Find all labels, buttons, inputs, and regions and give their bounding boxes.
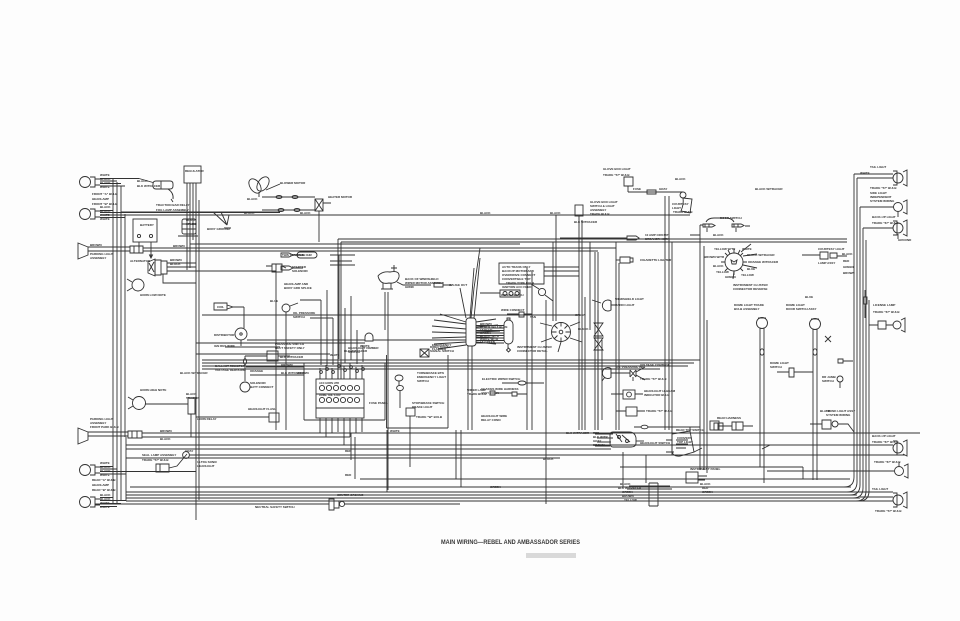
svg-text:TAN: TAN	[530, 315, 536, 319]
svg-text:LICENSE LAMP: LICENSE LAMP	[873, 303, 895, 307]
svg-text:YELLOW: YELLOW	[624, 498, 637, 502]
svg-text:INSTRUMENT PANEL: INSTRUMENT PANEL	[690, 467, 721, 471]
svg-text:YELLOW: YELLOW	[716, 270, 729, 274]
svg-text:HORN HIGH NOTE: HORN HIGH NOTE	[140, 388, 166, 392]
svg-text:COURTESY LIGHT: COURTESY LIGHT	[818, 247, 845, 251]
svg-text:BODY GRD SPLICE: BODY GRD SPLICE	[284, 286, 312, 290]
svg-text:REGULATOR: REGULATOR	[185, 169, 205, 173]
svg-text:WHITE: WHITE	[360, 344, 370, 348]
svg-text:BULB ASSEMBLY: BULB ASSEMBLY	[734, 307, 759, 311]
svg-text:GREEN: GREEN	[843, 265, 854, 269]
svg-text:WINDSHIELD LIGHT: WINDSHIELD LIGHT	[615, 297, 644, 301]
svg-text:GREEN: GREEN	[725, 275, 736, 279]
svg-text:REAR TOP SWITCH: REAR TOP SWITCH	[676, 428, 704, 432]
svg-text:IGNITION ACC FEED: IGNITION ACC FEED	[502, 285, 532, 289]
svg-text:BLACK: BLACK	[713, 233, 724, 237]
svg-text:HORN LOW NOTE: HORN LOW NOTE	[140, 293, 166, 297]
svg-text:RED: RED	[345, 449, 352, 453]
svg-text:YELLOW: YELLOW	[741, 273, 754, 277]
svg-text:BLACK: BLACK	[675, 177, 686, 181]
svg-text:RED: RED	[843, 259, 850, 263]
svg-text:TAIL LIGHT: TAIL LIGHT	[870, 165, 886, 169]
svg-text:BLK W/TRACER: BLK W/TRACER	[344, 349, 368, 353]
svg-text:ACC HORN HTR: ACC HORN HTR	[319, 381, 339, 385]
svg-text:TRADE "57" BULB: TRADE "57" BULB	[870, 186, 897, 190]
svg-text:TRACTION BAR RELAY: TRACTION BAR RELAY	[156, 203, 190, 207]
svg-text:TRACER: TRACER	[186, 396, 199, 400]
svg-text:NEUT SAFETY ONLY: NEUT SAFETY ONLY	[275, 346, 305, 350]
svg-text:LT GREEN: LT GREEN	[480, 340, 495, 344]
svg-text:BROWN: BROWN	[297, 371, 309, 375]
svg-text:DOME TAIL STOP: DOME TAIL STOP	[319, 393, 341, 397]
svg-text:RELAY CONN: RELAY CONN	[481, 418, 501, 422]
svg-text:BLACK W/TRACER: BLACK W/TRACER	[180, 371, 208, 375]
svg-text:BROWN W/TR: BROWN W/TR	[704, 255, 725, 259]
svg-text:DISTRIBUTOR: DISTRIBUTOR	[214, 333, 235, 337]
svg-text:BACK-UP LIGHT: BACK-UP LIGHT	[872, 215, 896, 219]
svg-text:DOOR SWITCH ASSY: DOOR SWITCH ASSY	[786, 307, 817, 311]
svg-text:WHITE: WHITE	[100, 505, 110, 509]
svg-text:TRADE "57" BULB: TRADE "57" BULB	[603, 173, 630, 177]
svg-text:BLK W/TRACER: BLK W/TRACER	[574, 220, 598, 224]
svg-text:BLACK: BLACK	[244, 211, 255, 215]
svg-text:GRAY: GRAY	[659, 187, 667, 191]
svg-text:BLK W/TRACER: BLK W/TRACER	[137, 184, 161, 188]
svg-text:WIPER SWITCH: WIPER SWITCH	[501, 293, 524, 297]
svg-text:GRAY: GRAY	[185, 449, 193, 453]
svg-text:REAR "A" BULB: REAR "A" BULB	[92, 478, 116, 482]
svg-text:SYSTEM WIRING: SYSTEM WIRING	[826, 413, 851, 417]
svg-text:BLACK: BLACK	[543, 457, 554, 461]
svg-text:LAMP ASSY: LAMP ASSY	[818, 261, 835, 265]
svg-text:BLK W/TRACER: BLK W/TRACER	[566, 431, 590, 435]
svg-text:30 OHM: 30 OHM	[302, 253, 312, 257]
svg-text:WHITE: WHITE	[330, 353, 340, 357]
svg-text:BLACK: BLACK	[842, 252, 853, 256]
svg-text:FOG LAMP ASSEMBLY: FOG LAMP ASSEMBLY	[156, 208, 189, 212]
svg-text:ELECTRIC WIPER SWITCH: ELECTRIC WIPER SWITCH	[482, 377, 520, 381]
svg-text:NEUTRAL SAFETY SWITCH: NEUTRAL SAFETY SWITCH	[255, 505, 295, 509]
svg-text:YELLOW W/TR: YELLOW W/TR	[714, 247, 736, 251]
svg-text:FRONT "A" BULB: FRONT "A" BULB	[92, 192, 118, 196]
svg-text:CONNECTOR REVERSE: CONNECTOR REVERSE	[733, 287, 767, 291]
svg-text:REAR "B" BULB: REAR "B" BULB	[92, 488, 116, 492]
svg-text:VOLTAGE REDUCING: VOLTAGE REDUCING	[215, 368, 247, 372]
svg-text:FUSE PANEL: FUSE PANEL	[369, 401, 388, 405]
svg-text:FRONT PARK BULB: FRONT PARK BULB	[90, 425, 119, 429]
svg-text:INDICATOR BULB: INDICATOR BULB	[644, 393, 670, 397]
svg-text:SWITCH: SWITCH	[293, 315, 305, 319]
svg-text:SWITCH: SWITCH	[417, 379, 429, 383]
svg-text:FUSE: FUSE	[633, 187, 641, 191]
svg-text:BROWN: BROWN	[160, 429, 172, 433]
svg-text:REAR HARNESS: REAR HARNESS	[717, 416, 741, 420]
svg-text:BODY GROUND: BODY GROUND	[207, 227, 231, 231]
svg-text:SYSTEM WIRING: SYSTEM WIRING	[870, 199, 895, 203]
svg-text:TRADE "67" BULB: TRADE "67" BULB	[874, 460, 901, 464]
svg-text:BRAKE LIGHT: BRAKE LIGHT	[412, 405, 433, 409]
svg-text:BLACK: BLACK	[137, 179, 148, 183]
svg-text:HEADLIGHT SWITCH: HEADLIGHT SWITCH	[640, 441, 670, 445]
svg-text:BROWN: BROWN	[593, 443, 605, 447]
svg-text:BLACK W/TRACER: BLACK W/TRACER	[755, 187, 783, 191]
svg-text:GRND: GRND	[405, 285, 415, 289]
svg-text:ASSY CONN: ASSY CONN	[481, 391, 499, 395]
svg-text:TRADE "67" BULB: TRADE "67" BULB	[872, 440, 899, 444]
svg-text:TRADE "57" BULB: TRADE "57" BULB	[646, 409, 673, 413]
svg-text:TOP LIGHT: TOP LIGHT	[677, 440, 693, 444]
svg-text:BLOWER MOTOR: BLOWER MOTOR	[280, 181, 306, 185]
svg-text:TRADE "67" BULB: TRADE "67" BULB	[872, 221, 899, 225]
svg-text:BLUE: BLUE	[270, 299, 278, 303]
svg-text:BLACK: BLACK	[820, 409, 831, 413]
svg-text:TRADE "57" BULB: TRADE "57" BULB	[142, 458, 169, 462]
svg-text:WHITE: WHITE	[390, 429, 400, 433]
svg-text:SPLICE: SPLICE	[186, 222, 197, 226]
svg-text:GREEN: GREEN	[702, 490, 713, 494]
svg-text:WHITE: WHITE	[100, 473, 110, 477]
svg-text:BLUE: BLUE	[805, 295, 813, 299]
svg-text:ORANGE: ORANGE	[250, 369, 263, 373]
svg-text:COIL: COIL	[217, 305, 224, 309]
svg-text:VOLTAGE CONTROL: VOLTAGE CONTROL	[640, 363, 670, 367]
svg-text:BLACK: BLACK	[550, 211, 561, 215]
svg-text:SIGNAL SWITCH: SIGNAL SWITCH	[430, 349, 454, 353]
svg-text:HEATER MOTOR: HEATER MOTOR	[328, 195, 353, 199]
svg-text:BACK-UP LIGHT: BACK-UP LIGHT	[872, 434, 896, 438]
svg-text:MAIN WIRING—REBEL AND AMBAS: MAIN WIRING—REBEL AND AMBASSADOR SERIES	[441, 539, 581, 546]
svg-text:GLOVE BOX LIGHT: GLOVE BOX LIGHT	[603, 167, 631, 171]
svg-text:CONNECTOR DETAIL: CONNECTOR DETAIL	[517, 349, 548, 353]
svg-text:BLACK: BLACK	[480, 211, 491, 215]
svg-text:HEADLIGHT FLASH: HEADLIGHT FLASH	[248, 407, 276, 411]
svg-text:HEADLAMP: HEADLAMP	[92, 483, 109, 487]
svg-text:GREEN: GREEN	[575, 313, 586, 317]
svg-text:BLACK: BLACK	[578, 327, 589, 331]
svg-text:TRADE "57" BULB: TRADE "57" BULB	[875, 509, 902, 513]
svg-text:BREAKER HORN: BREAKER HORN	[645, 237, 670, 241]
svg-text:HEADLAMP: HEADLAMP	[92, 197, 109, 201]
svg-text:BROWN: BROWN	[90, 243, 102, 247]
svg-text:SWITCH: SWITCH	[770, 365, 782, 369]
svg-text:TAIL LIGHT: TAIL LIGHT	[872, 487, 888, 491]
svg-text:ALTERNATOR: ALTERNATOR	[130, 259, 151, 263]
svg-text:WHITE: WHITE	[100, 185, 110, 189]
svg-text:TRADE BULB: TRADE BULB	[590, 212, 610, 216]
svg-text:BLACK: BLACK	[247, 197, 258, 201]
svg-text:HORN RELAY: HORN RELAY	[197, 417, 217, 421]
svg-text:GAUGE OUT: GAUGE OUT	[449, 283, 467, 287]
svg-text:BLACK: BLACK	[160, 437, 171, 441]
svg-text:BLACK W/TRACER: BLACK W/TRACER	[747, 253, 775, 257]
svg-text:TRADE "57" BULB: TRADE "57" BULB	[640, 377, 667, 381]
svg-text:HEADLIGHT: HEADLIGHT	[197, 464, 215, 468]
svg-text:WHITE: WHITE	[100, 217, 110, 221]
svg-text:WHITE: WHITE	[742, 247, 752, 251]
svg-text:BLACK: BLACK	[170, 262, 181, 266]
svg-text:WHITE: WHITE	[860, 171, 870, 175]
svg-text:TRADE BULB: TRADE BULB	[673, 210, 693, 214]
svg-text:BROWN: BROWN	[281, 363, 293, 367]
svg-text:CIGARETTE LIGHTER: CIGARETTE LIGHTER	[640, 258, 672, 262]
svg-text:SOLENOID: SOLENOID	[292, 269, 309, 273]
svg-text:BROWN: BROWN	[843, 271, 855, 275]
svg-text:ASSEMBLY: ASSEMBLY	[90, 256, 106, 260]
svg-text:SWITCH: SWITCH	[822, 379, 834, 383]
svg-text:IGN RES WIRE: IGN RES WIRE	[214, 344, 235, 348]
svg-text:BLACK: BLACK	[713, 264, 724, 268]
svg-text:TRADE "67" BULB: TRADE "67" BULB	[873, 310, 900, 314]
svg-text:BLUE: BLUE	[747, 267, 755, 271]
svg-text:GROUND: GROUND	[898, 238, 912, 242]
svg-text:RADIO LIGHT: RADIO LIGHT	[615, 303, 635, 307]
svg-text:TRADE "W" BULB: TRADE "W" BULB	[416, 415, 443, 419]
svg-text:BLACK: BLACK	[300, 211, 311, 215]
svg-text:ORANGE W/TRACER: ORANGE W/TRACER	[748, 260, 779, 264]
svg-text:GREEN: GREEN	[490, 485, 501, 489]
svg-text:WIRE CONNECT: WIRE CONNECT	[501, 308, 525, 312]
svg-text:RED: RED	[345, 473, 352, 477]
svg-text:SEAL LAMP ASSEMBLY: SEAL LAMP ASSEMBLY	[142, 453, 176, 457]
svg-text:DOOR SWITCH: DOOR SWITCH	[720, 216, 742, 220]
svg-text:BATTERY: BATTERY	[140, 223, 154, 227]
svg-text:BLK W/TRACER: BLK W/TRACER	[280, 355, 304, 359]
svg-text:BATT CONNECT: BATT CONNECT	[250, 385, 274, 389]
svg-text:CENTER GROUND: CENTER GROUND	[337, 493, 364, 497]
svg-text:BROWN: BROWN	[173, 244, 185, 248]
